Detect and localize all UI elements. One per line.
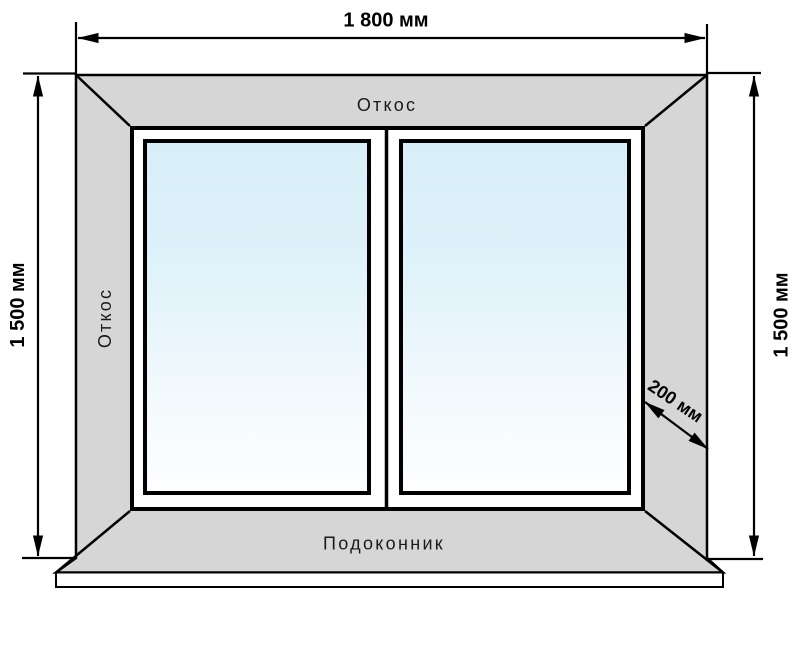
- svg-text:1 500 мм: 1 500 мм: [771, 272, 793, 357]
- svg-text:1 800 мм: 1 800 мм: [343, 10, 428, 32]
- svg-text:1 500 мм: 1 500 мм: [7, 262, 29, 347]
- svg-text:Откос: Откос: [95, 288, 115, 348]
- svg-text:Подоконник: Подоконник: [323, 534, 445, 554]
- svg-text:Откос: Откос: [357, 95, 417, 115]
